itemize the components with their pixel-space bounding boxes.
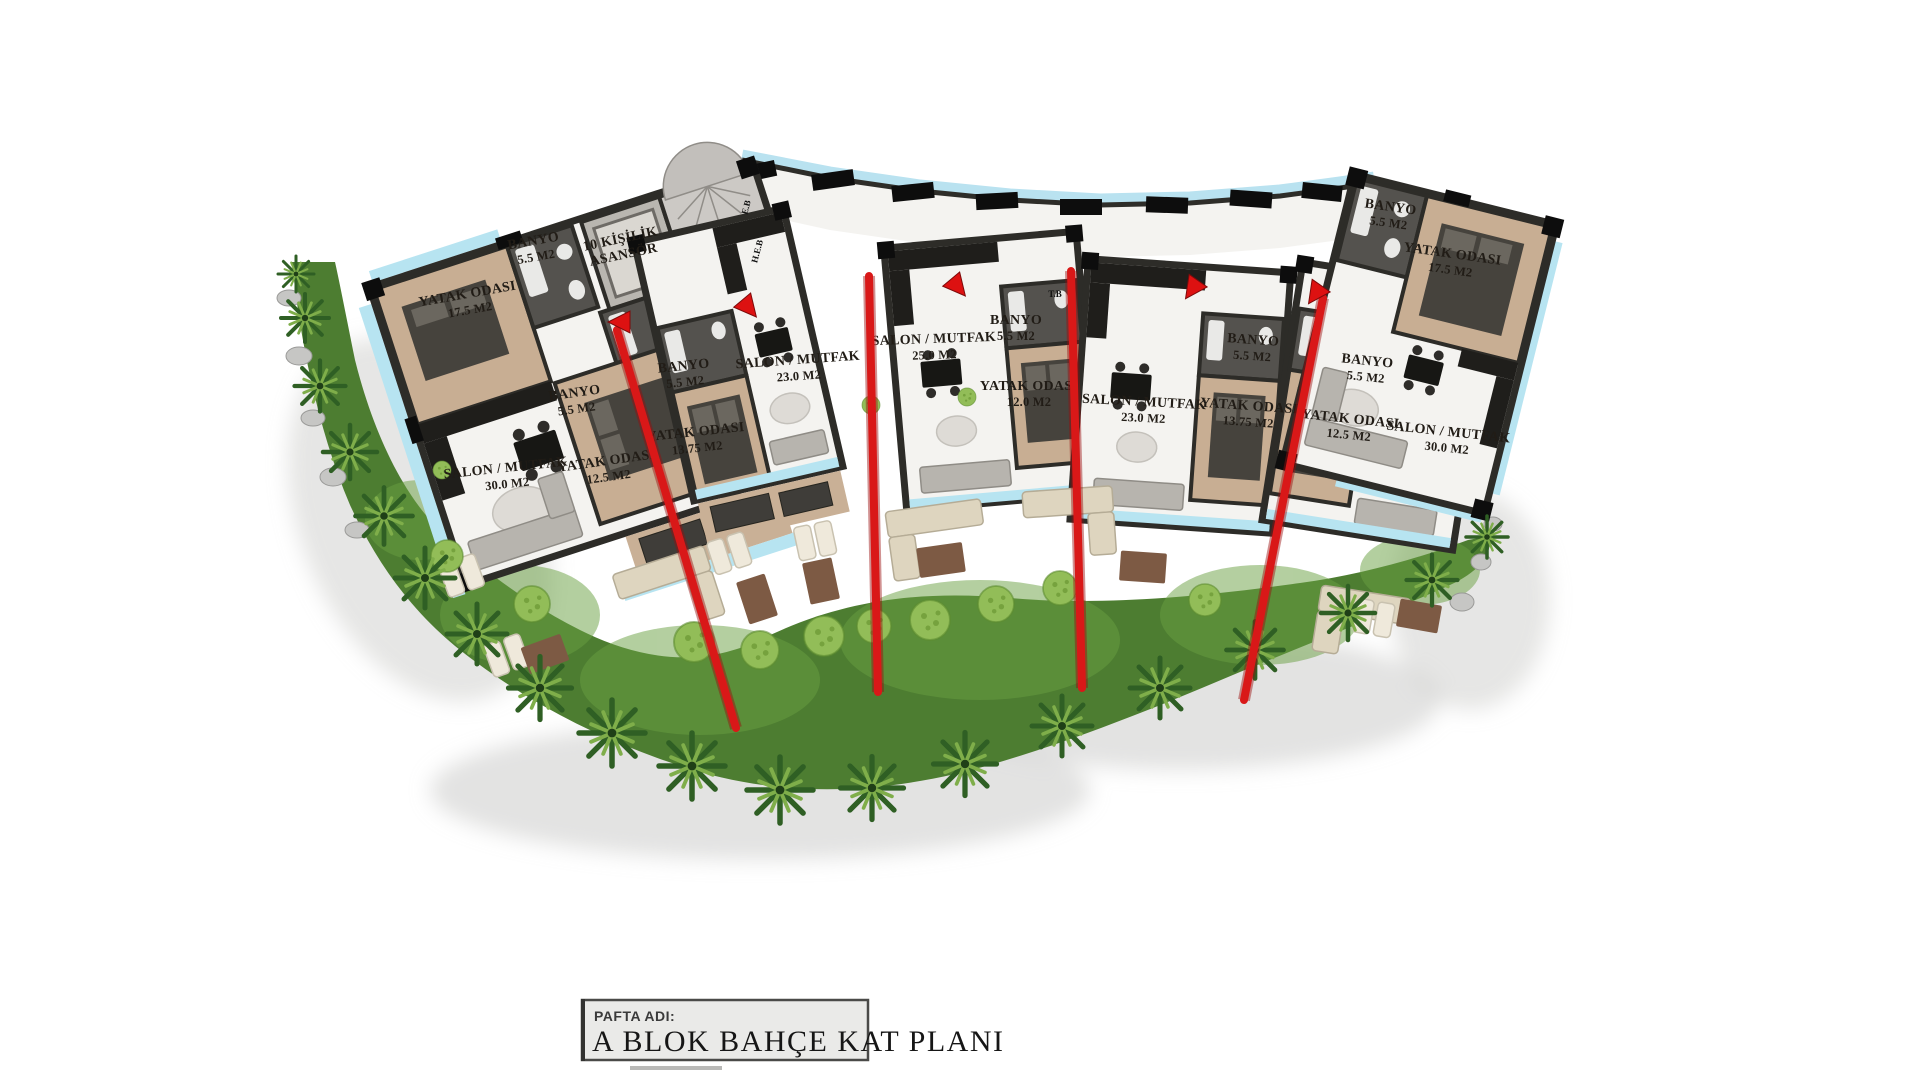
svg-text:5.5 M2: 5.5 M2 xyxy=(997,329,1035,343)
svg-text:23.0 M2: 23.0 M2 xyxy=(1121,410,1166,426)
page-title: A BLOK BAHÇE KAT PLANI xyxy=(592,1025,1004,1058)
svg-text:25.0 M2: 25.0 M2 xyxy=(912,347,957,363)
svg-text:YATAK ODASI: YATAK ODASI xyxy=(980,379,1078,394)
floor-plan-page: YATAK ODASI17.5 M2 BANYO5.5 M2 10 KİŞİLİ… xyxy=(0,0,1920,1080)
title-underline xyxy=(630,1066,722,1070)
svg-text:12.0 M2: 12.0 M2 xyxy=(1007,395,1051,409)
title-block: PAFTA ADI: A BLOK BAHÇE KAT PLANI xyxy=(582,999,1004,1070)
floor-plan-canvas: YATAK ODASI17.5 M2 BANYO5.5 M2 10 KİŞİLİ… xyxy=(0,0,1920,1080)
svg-text:T.B: T.B xyxy=(1048,289,1062,299)
small-label: T.B xyxy=(1048,289,1062,299)
title-block-label: PAFTA ADI: xyxy=(594,1008,675,1024)
svg-text:5.5 M2: 5.5 M2 xyxy=(1233,348,1272,365)
svg-text:BANYO: BANYO xyxy=(990,313,1042,328)
